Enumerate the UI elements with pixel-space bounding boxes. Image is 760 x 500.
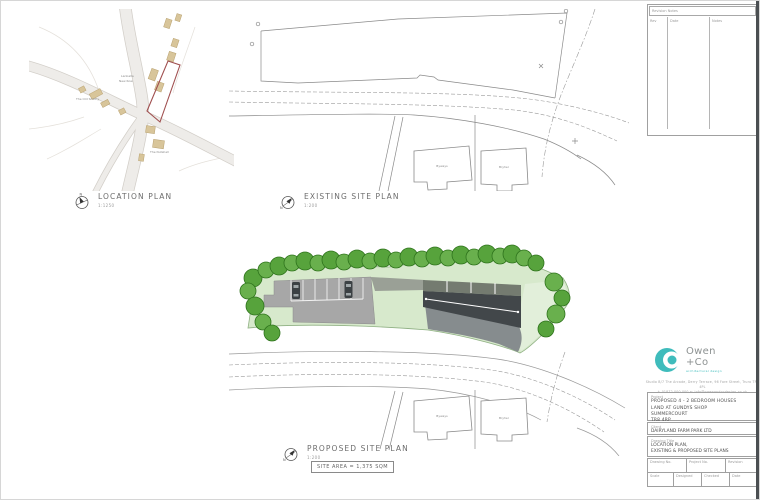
field-scale: Scale 1:75 xyxy=(647,472,674,487)
label-house-2b: Bryher xyxy=(499,416,510,420)
north-arrow-icon: N xyxy=(73,192,91,210)
roads xyxy=(29,9,234,191)
svg-text:N: N xyxy=(283,458,286,462)
proposed-plan-title-block: N PROPOSED SITE PLAN 1:200 xyxy=(282,444,409,462)
ridge-end-dot xyxy=(425,298,427,300)
label-house-1: Byways xyxy=(436,164,448,168)
svg-text:N: N xyxy=(80,193,83,197)
site-boundary xyxy=(250,9,568,98)
existing-houses xyxy=(414,146,528,191)
existing-plan-title: EXISTING SITE PLAN xyxy=(304,192,400,201)
site-area-note: SITE AREA = 1,375 SQM xyxy=(311,461,394,473)
drawing-info-grid: Drawing No. AB.SHD.04 Project No. DWG/88… xyxy=(647,458,758,487)
field-revision: Revision - xyxy=(725,458,757,473)
ridge-end-dot xyxy=(517,311,519,313)
logo-text-line2: +Co xyxy=(686,358,722,369)
label-house-1b: Byways xyxy=(436,414,448,418)
address-line-1: Studio B/7 The Arcade, Derry Terrace, 96… xyxy=(645,380,760,390)
proposed-plan-title: PROPOSED SITE PLAN xyxy=(307,444,409,453)
drawing-title-line-2: EXISTING & PROPOSED SITE PLANS xyxy=(651,449,754,455)
field-drawing-no: Drawing No. AB.SHD.04 xyxy=(647,458,687,473)
date-label: Date xyxy=(732,474,754,478)
field-checked: Checked ESD xyxy=(701,472,730,487)
revision-table-title: Revision Notes xyxy=(652,9,678,13)
client-name: DAIRYLAND FARM PARK LTD xyxy=(651,429,754,435)
revision-col-date: Date xyxy=(668,17,710,129)
project-box: Project PROPOSED 4 - 2 BEDROOM HOUSES LA… xyxy=(647,392,758,421)
field-project-no: Project No. DWG/88 01 xyxy=(686,458,726,473)
client-box: Client DAIRYLAND FARM PARK LTD xyxy=(647,422,758,435)
location-plan-scale: 1:1250 xyxy=(98,203,172,208)
label-small-1: Lanballa xyxy=(121,74,134,78)
north-arrow-icon: N xyxy=(279,192,297,210)
col-date-label: Date xyxy=(670,19,707,23)
north-arrow-icon: N xyxy=(282,444,300,462)
owen-co-logo: Owen +Co architectural design xyxy=(654,347,722,373)
field-designed: Designed PDA JUL xyxy=(673,472,702,487)
designed-label: Designed xyxy=(676,474,699,478)
location-plan-title-block: N LOCATION PLAN 1:1250 xyxy=(73,192,172,210)
col-notes-label: Notes xyxy=(712,19,755,23)
existing-site-plan-drawing: Byways Bryher xyxy=(229,9,629,191)
label-small-2: New Row xyxy=(119,79,133,83)
label-house-2: Bryher xyxy=(499,165,510,169)
logo-tagline: architectural design xyxy=(686,369,722,373)
drawing-title-box: Drawing Title LOCATION PLAN, EXISTING & … xyxy=(647,436,758,457)
label-old-smithy: The Old Smithy xyxy=(75,97,99,101)
label-nutshell: The Nutshell xyxy=(149,150,169,154)
proposed-plan-scale: 1:200 xyxy=(307,455,409,460)
checked-label: Checked xyxy=(704,474,727,478)
field-date: Date FEB 21 xyxy=(729,472,757,487)
revision-col-notes: Notes xyxy=(710,17,757,129)
col-rev-label: Rev xyxy=(650,19,665,23)
drawing-sheet: The Old Smithy The Nutshell Lanballa New… xyxy=(0,0,760,500)
existing-plan-title-block: N EXISTING SITE PLAN 1:200 xyxy=(279,192,400,210)
svg-text:N: N xyxy=(280,206,283,210)
right-road-line xyxy=(542,9,595,177)
location-plan-title: LOCATION PLAN xyxy=(98,192,172,201)
revision-label: Revision xyxy=(728,460,754,464)
existing-plan-scale: 1:200 xyxy=(304,203,400,208)
revision-table: Revision Notes Rev Date Notes xyxy=(647,4,758,136)
logo-text-line1: Owen xyxy=(686,347,722,358)
proposed-site-plan-drawing: Byways Bryher xyxy=(229,244,649,456)
scale-label: Scale xyxy=(650,474,671,478)
drawing-no-label: Drawing No. xyxy=(650,460,684,464)
location-plan-drawing: The Old Smithy The Nutshell Lanballa New… xyxy=(29,9,234,191)
revision-col-rev: Rev xyxy=(648,17,668,129)
context-houses xyxy=(414,396,528,441)
project-no-label: Project No. xyxy=(689,460,723,464)
window-right-edge xyxy=(756,1,759,499)
owen-co-logo-icon xyxy=(654,347,680,373)
revision-table-header: Revision Notes xyxy=(649,6,756,16)
